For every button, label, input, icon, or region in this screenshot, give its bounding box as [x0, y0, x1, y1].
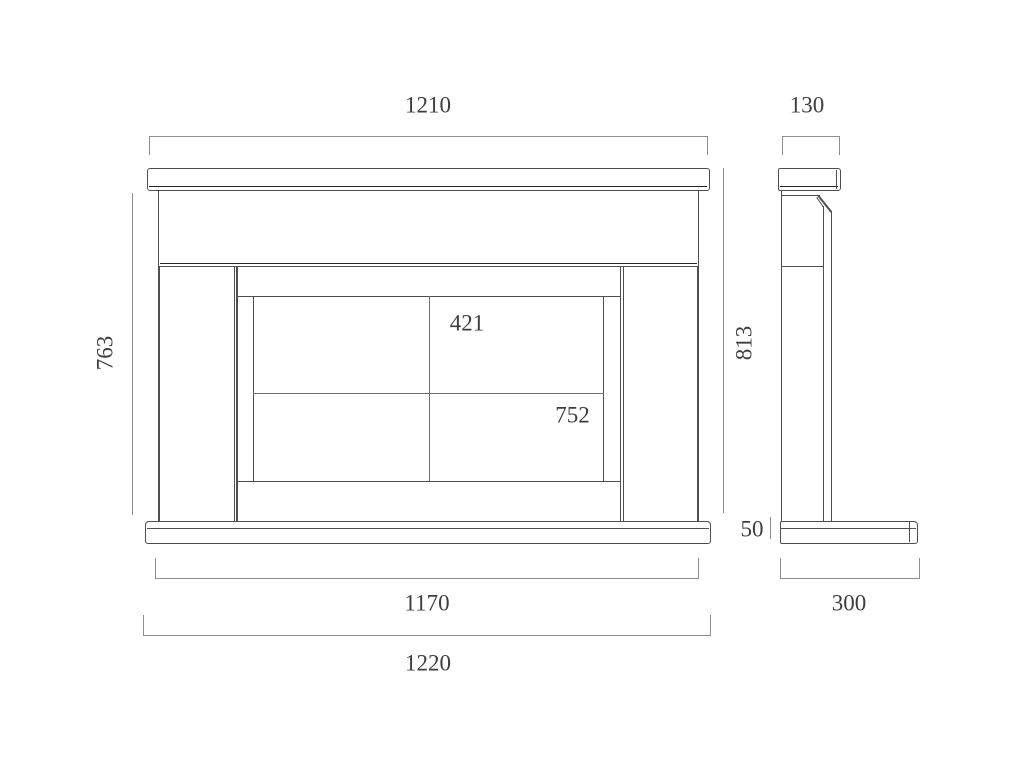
body-width-label: 1170	[404, 592, 449, 615]
side-front-inner-edge	[823, 206, 824, 522]
opening-height-label: 421	[450, 312, 485, 335]
surround-height-label: 763	[94, 336, 117, 371]
surround-height-dim-line	[132, 193, 133, 515]
front-right-leg-inner-edge	[620, 267, 622, 522]
front-left-leg-inner-edge	[236, 267, 238, 522]
opening-height-dim-line	[429, 296, 430, 483]
front-plinth-inner-line	[147, 528, 710, 529]
side-plinth-base	[780, 521, 919, 545]
side-frieze-bottom-line	[782, 266, 824, 267]
front-plinth-base	[145, 521, 712, 545]
plinth-depth-bracket	[780, 558, 920, 579]
opening-width-label: 752	[555, 404, 590, 427]
overall-height-dim-line	[723, 168, 724, 513]
plinth-width-bracket	[143, 615, 711, 636]
opening-right-edge	[603, 296, 604, 483]
side-shelf-inner-right-edge	[836, 170, 837, 189]
front-shelf-shadow-line	[149, 186, 707, 187]
shelf-width-label: 1210	[405, 94, 451, 117]
opening-left-edge	[253, 296, 254, 483]
side-plinth-inner-line	[781, 528, 916, 529]
side-plinth-inner-right-edge	[909, 522, 910, 542]
front-frieze-panel	[158, 189, 699, 267]
front-right-leg-outer-edge	[697, 267, 699, 522]
front-mantel-shelf	[147, 168, 710, 191]
shelf-depth-label: 130	[790, 94, 825, 117]
front-frieze-shadow-line	[160, 263, 698, 264]
body-width-bracket	[155, 558, 699, 579]
front-left-leg-outer-edge	[158, 267, 160, 522]
drawing-canvas: 421 752 1210 763 813 50 1170 1220	[0, 0, 1024, 768]
side-front-edge	[831, 211, 833, 522]
opening-width-dim-line	[253, 393, 604, 394]
side-shelf-shadow-line	[780, 186, 838, 187]
side-back-edge	[781, 190, 783, 521]
shelf-width-bracket	[149, 136, 709, 155]
front-left-leg-shadow-edge	[234, 267, 235, 522]
plinth-width-label: 1220	[405, 652, 451, 675]
plinth-height-tick	[770, 517, 771, 539]
shelf-depth-bracket	[782, 136, 840, 155]
side-mantel-shelf	[778, 168, 841, 191]
side-frieze-top-line	[782, 195, 820, 196]
overall-height-label: 813	[733, 326, 756, 361]
front-right-leg-shadow-edge	[623, 267, 624, 522]
plinth-depth-label: 300	[832, 591, 867, 614]
plinth-height-label: 50	[741, 517, 764, 540]
